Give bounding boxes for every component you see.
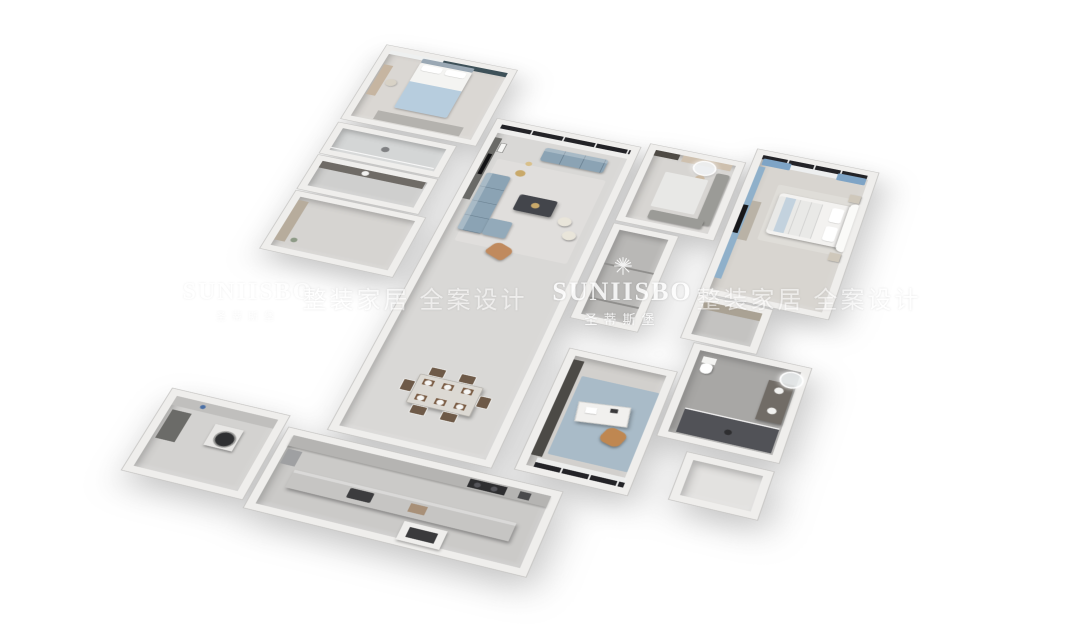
pillow <box>828 208 845 224</box>
threshold <box>588 296 639 309</box>
sliding-wardrobe <box>701 301 762 321</box>
room-kitchen <box>244 427 562 576</box>
pillow <box>821 226 838 243</box>
room-master-bathroom <box>657 343 811 463</box>
decor-plant <box>289 237 298 243</box>
marble-rug <box>650 172 708 215</box>
mirror-wardrobe <box>654 150 681 160</box>
shoe-cabinet <box>274 200 309 242</box>
threshold <box>604 263 654 275</box>
oven-cabinet <box>396 521 448 550</box>
cooktop <box>467 479 508 496</box>
desk-chair <box>383 78 398 87</box>
render-canvas: SUNIISBO 圣蒂斯堡 整装家居 全案设计 SUNIISBO 圣蒂斯堡 整装… <box>0 0 1080 608</box>
burner <box>490 486 499 492</box>
blanket-blue <box>394 81 462 118</box>
cutting-board <box>407 503 428 515</box>
basin <box>360 170 370 176</box>
oven-door <box>405 527 438 544</box>
washer-door <box>209 429 239 450</box>
room-bay <box>669 452 774 520</box>
fridge <box>280 449 302 467</box>
toilet-bowl <box>698 362 714 374</box>
bed <box>394 63 473 118</box>
pillow <box>420 65 443 74</box>
shower-drain <box>380 146 391 153</box>
washing-machine <box>203 424 244 452</box>
room-study <box>515 348 677 495</box>
gold-tray <box>530 202 541 209</box>
lounge-sofa-grey <box>647 209 704 229</box>
dark-cabinet <box>155 409 192 442</box>
burner <box>473 482 482 488</box>
floor-plan-3d <box>101 37 896 634</box>
coffee-machine <box>517 491 531 501</box>
basin <box>766 407 777 415</box>
nightstand <box>827 252 841 262</box>
shower-drain <box>723 429 732 436</box>
sink <box>346 488 375 503</box>
basin <box>773 387 784 395</box>
pillow <box>444 69 467 78</box>
paper <box>585 407 598 414</box>
desk-lamp <box>610 409 618 414</box>
